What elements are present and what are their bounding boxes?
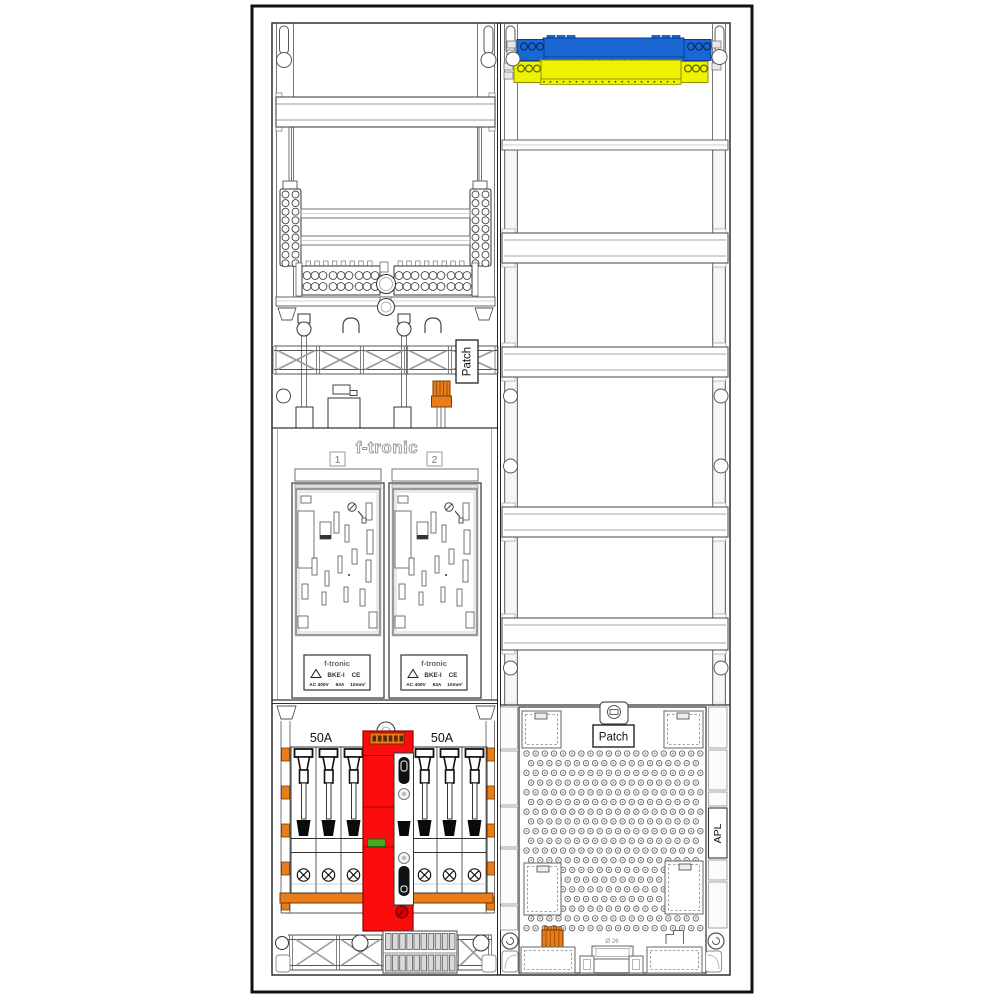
meter-slot <box>435 556 439 573</box>
comb-hole <box>292 251 299 258</box>
terminal-pin <box>378 736 382 742</box>
terminal-cell <box>421 955 427 971</box>
perforation-hole-center <box>558 917 560 919</box>
comb-hole <box>345 272 353 280</box>
patch-label-right: Patch <box>599 732 628 744</box>
perforation-hole-center <box>677 917 679 919</box>
perforation-hole-center <box>663 791 665 793</box>
din-clip-orange <box>282 862 290 875</box>
perforation-hole-center <box>585 917 587 919</box>
rail-hole <box>712 50 727 65</box>
perforation-hole-center <box>608 869 610 871</box>
busbar-dot <box>628 81 630 83</box>
perforation-hole-center <box>649 879 651 881</box>
comb-hole <box>282 251 289 258</box>
meter-slot <box>334 512 339 533</box>
perforation-hole-center <box>544 850 546 852</box>
clamp-block <box>296 407 313 428</box>
perforation-hole-center <box>562 753 564 755</box>
meter-slot <box>449 549 454 564</box>
perforation-hole-center <box>699 830 701 832</box>
comb-hole <box>411 272 419 280</box>
terminal-cell <box>421 934 427 950</box>
perforation-hole-center <box>599 830 601 832</box>
perforation-hole-center <box>640 840 642 842</box>
perforation-hole-center <box>690 772 692 774</box>
comb-tooth <box>460 261 465 266</box>
perforation-hole-center <box>558 801 560 803</box>
comb-hole <box>363 283 371 291</box>
perforation-hole-center <box>672 811 674 813</box>
thin-rail <box>502 140 728 150</box>
busbar-dot <box>550 81 552 83</box>
perforation-hole-center <box>649 917 651 919</box>
perforation-hole-center <box>672 791 674 793</box>
terminal-cell <box>428 934 434 950</box>
perforation-hole-center <box>677 840 679 842</box>
perforation-hole-center <box>690 753 692 755</box>
perforation-hole-center <box>590 772 592 774</box>
comb-hole <box>371 272 379 280</box>
perforation-hole-center <box>608 908 610 910</box>
device-handle <box>398 821 411 836</box>
meter-slot <box>322 592 326 605</box>
perforation-hole-center <box>644 927 646 929</box>
perforation-hole-center <box>658 859 660 861</box>
perforation-hole-center <box>567 898 569 900</box>
comb-hole <box>482 251 489 258</box>
comb-hole <box>355 272 363 280</box>
perforation-hole-center <box>580 869 582 871</box>
perforation-hole-center <box>562 850 564 852</box>
perforation-hole-center <box>622 859 624 861</box>
perforation-hole-center <box>612 801 614 803</box>
perforation-hole-center <box>580 772 582 774</box>
perforation-hole-center <box>603 820 605 822</box>
perforation-hole-center <box>677 782 679 784</box>
meter-slot <box>312 558 317 575</box>
din-clip-orange <box>282 824 290 837</box>
busbar-dot <box>576 81 578 83</box>
rail-block <box>501 707 518 749</box>
perforation-hole-center <box>617 772 619 774</box>
perforation-hole-center <box>644 753 646 755</box>
perforation-hole-center <box>544 772 546 774</box>
perforation-hole-center <box>539 820 541 822</box>
comb-tooth <box>433 261 438 266</box>
breaker-rating-right: 50A <box>431 731 454 745</box>
terminal-cell <box>414 955 420 971</box>
terminal-cell <box>435 934 441 950</box>
patch-label-left: Patch <box>462 347 474 376</box>
perforation-hole-center <box>635 927 637 929</box>
perforation-hole-center <box>644 908 646 910</box>
rail-hole <box>481 53 496 68</box>
comb-hole <box>282 208 289 215</box>
perforation-hole-center <box>617 927 619 929</box>
perforation-hole-center <box>576 820 578 822</box>
perforation-hole-center <box>635 791 637 793</box>
perforation-hole-center <box>663 753 665 755</box>
corner-foot <box>482 955 496 972</box>
perforation-hole-center <box>663 850 665 852</box>
perforation-hole-center <box>612 820 614 822</box>
perforation-hole-center <box>654 869 656 871</box>
perforation-hole-center <box>699 850 701 852</box>
din-clip-orange <box>487 786 495 799</box>
perforation-hole-center <box>558 859 560 861</box>
perforation-hole-center <box>681 830 683 832</box>
comb-hole <box>403 272 411 280</box>
busbar-dot <box>602 81 604 83</box>
perforation-hole-center <box>658 762 660 764</box>
perforation-hole-center <box>622 762 624 764</box>
wiring-comb-bottom <box>296 261 478 296</box>
perforation-hole-center <box>667 820 669 822</box>
perforation-hole-center <box>567 840 569 842</box>
busbar-dot <box>608 81 610 83</box>
din-clip-orange <box>282 748 290 761</box>
perforation-hole-center <box>548 917 550 919</box>
comb-hole <box>403 283 411 291</box>
perforation-hole-center <box>571 908 573 910</box>
meter-slot <box>345 525 349 542</box>
perforation-hole-center <box>635 811 637 813</box>
perforation-hole-center <box>576 762 578 764</box>
meter-slot <box>366 560 371 582</box>
perforation-hole-center <box>580 927 582 929</box>
perforation-hole-center <box>617 850 619 852</box>
perforation-hole-center <box>603 762 605 764</box>
perforation-hole-center <box>672 927 674 929</box>
perforation-hole-center <box>590 888 592 890</box>
perforation-hole-center <box>594 820 596 822</box>
plate-current: 63A <box>433 682 442 688</box>
perforation-hole-center <box>699 753 701 755</box>
perforation-hole-center <box>580 830 582 832</box>
perforation-hole-center <box>539 859 541 861</box>
perforation-hole-center <box>681 753 683 755</box>
perforation-hole-center <box>590 850 592 852</box>
perforation-hole-center <box>603 859 605 861</box>
busbar-dot <box>667 81 669 83</box>
din-rail <box>502 507 728 537</box>
perforation-hole-center <box>590 830 592 832</box>
terminal-pin <box>383 736 387 742</box>
rail-block <box>709 750 728 790</box>
perforation-hole-center <box>608 888 610 890</box>
breaker-stem <box>352 783 357 819</box>
comb-hole <box>319 272 327 280</box>
comb-hole <box>395 283 403 291</box>
meter-slot <box>466 612 474 628</box>
busbar-dot <box>569 81 571 83</box>
perforation-hole-center <box>612 782 614 784</box>
perforation-hole-center <box>617 869 619 871</box>
perforation-hole-center <box>672 753 674 755</box>
perforation-hole-center <box>640 820 642 822</box>
comb-hole <box>282 234 289 241</box>
meter-slot <box>352 549 357 564</box>
perforation-hole-center <box>530 801 532 803</box>
comb-hole <box>345 283 353 291</box>
perforation-hole-center <box>585 801 587 803</box>
meter-slot <box>302 584 308 599</box>
corner-foot <box>276 955 290 972</box>
perforation-hole-center <box>622 820 624 822</box>
perforation-hole-center <box>681 811 683 813</box>
breaker-stem <box>423 783 428 819</box>
perforation-hole-center <box>690 791 692 793</box>
perforation-hole-center <box>617 888 619 890</box>
comb-hole <box>292 191 299 198</box>
perforation-hole-center <box>603 898 605 900</box>
perforation-hole-center <box>562 830 564 832</box>
comb-tooth <box>416 261 421 266</box>
perforation-hole-center <box>548 782 550 784</box>
perforation-hole-center <box>626 888 628 890</box>
din-clip-orange <box>282 786 290 799</box>
orange-terminal-strip <box>370 733 404 744</box>
terminal-cell <box>400 955 406 971</box>
comb-hole <box>455 272 463 280</box>
terminal-cell <box>442 934 448 950</box>
perforation-hole-center <box>580 888 582 890</box>
perforation-hole-center <box>672 850 674 852</box>
perforation-hole-center <box>631 782 633 784</box>
perforation-hole-center <box>576 917 578 919</box>
terminal-cell <box>435 955 441 971</box>
perforation-hole-center <box>599 927 601 929</box>
perforation-hole-center <box>631 820 633 822</box>
breaker-stem <box>448 783 453 819</box>
perforation-hole-center <box>553 850 555 852</box>
perforation-hole-center <box>535 811 537 813</box>
comb-hole <box>292 208 299 215</box>
breaker-hook-neck <box>323 757 335 770</box>
perforation-hole-center <box>635 772 637 774</box>
perforation-hole-center <box>585 762 587 764</box>
perforation-hole-center <box>640 859 642 861</box>
comb-tooth <box>442 261 447 266</box>
comb-tooth <box>350 261 355 266</box>
terminal-pin <box>373 736 377 742</box>
perforation-hole-center <box>599 753 601 755</box>
perforation-hole-center <box>635 830 637 832</box>
perforation-hole-center <box>690 830 692 832</box>
comb-hole <box>282 200 289 207</box>
meter-slot <box>431 512 436 533</box>
comb-hole <box>421 272 429 280</box>
breaker-hook-foot <box>300 770 309 783</box>
comb-hole <box>292 217 299 224</box>
rail-block <box>501 906 518 930</box>
rail-block <box>709 792 728 806</box>
breaker-hook <box>441 749 459 757</box>
comb-hole <box>292 243 299 250</box>
perforation-hole-center <box>654 772 656 774</box>
comb-hole <box>455 283 463 291</box>
meter-slot <box>419 592 423 605</box>
perforation-hole-center <box>526 791 528 793</box>
breaker-hook <box>416 749 434 757</box>
perforation-hole-center <box>663 811 665 813</box>
perforation-hole-center <box>544 830 546 832</box>
perforation-hole-center <box>663 830 665 832</box>
side-hole <box>277 389 291 403</box>
perforation-hole-center <box>603 917 605 919</box>
perforation-hole-center <box>681 791 683 793</box>
breaker-hook <box>345 749 363 757</box>
terminal-pin <box>389 736 393 742</box>
perforation-hole-center <box>640 801 642 803</box>
lattice-end-hole <box>352 935 368 951</box>
comb-hole <box>421 283 429 291</box>
perforation-hole-center <box>626 753 628 755</box>
perforation-hole-center <box>695 820 697 822</box>
perforation-hole-center <box>699 791 701 793</box>
busbar-dot <box>543 81 545 83</box>
perforation-hole-center <box>535 791 537 793</box>
meter-dot <box>445 574 447 576</box>
perforation-hole-center <box>530 917 532 919</box>
comb-tooth <box>332 261 337 266</box>
perforation-hole-center <box>539 782 541 784</box>
perforation-hole-center <box>695 762 697 764</box>
perforation-hole-center <box>612 840 614 842</box>
comb-tooth <box>451 261 456 266</box>
perforation-hole-center <box>658 820 660 822</box>
busbar-dot <box>647 81 649 83</box>
perforation-hole-center <box>599 791 601 793</box>
comb-hole <box>472 217 479 224</box>
perforation-hole-center <box>654 830 656 832</box>
perforation-hole-center <box>654 811 656 813</box>
perforation-hole-center <box>571 850 573 852</box>
meter-slot <box>366 503 372 520</box>
comb-hole <box>437 283 445 291</box>
gland-diameter-label: Ø 26 <box>605 938 619 945</box>
comb-hole <box>482 234 489 241</box>
perforation-hole-center <box>594 879 596 881</box>
perforation-hole-center <box>654 791 656 793</box>
terminal-cell <box>386 934 392 950</box>
perforation-hole-center <box>599 850 601 852</box>
plate-wire-size: 10mm² <box>350 682 366 688</box>
perforation-hole-center <box>590 791 592 793</box>
comb-hole <box>472 191 479 198</box>
perforation-hole-center <box>626 811 628 813</box>
comb-hole <box>429 283 437 291</box>
cutout-rect-bottom-right <box>647 947 702 973</box>
perforation-hole-center <box>631 898 633 900</box>
perforation-hole-center <box>686 782 688 784</box>
terminal-cell <box>414 934 420 950</box>
perforation-hole-center <box>631 859 633 861</box>
breaker-stem <box>327 783 332 819</box>
surge-device-red <box>363 731 414 931</box>
rail-slot <box>484 26 493 54</box>
perforation-hole-center <box>654 850 656 852</box>
terminal-cell <box>386 955 392 971</box>
perforation-hole-center <box>571 791 573 793</box>
busbar-dot <box>589 81 591 83</box>
breaker-hook-foot <box>446 770 455 783</box>
busbar-dot <box>595 81 597 83</box>
comb-tooth <box>398 261 403 266</box>
perforation-hole-center <box>699 927 701 929</box>
perforation-hole-center <box>553 791 555 793</box>
clamp-block <box>328 398 360 428</box>
terminal-cell <box>442 955 448 971</box>
plate-ce-mark: CE <box>449 672 458 679</box>
perforation-hole-center <box>567 820 569 822</box>
comb-hole <box>463 272 471 280</box>
perforation-hole-center <box>571 869 573 871</box>
perforation-hole-center <box>690 927 692 929</box>
perforation-hole-center <box>667 762 669 764</box>
perforation-hole-center <box>686 840 688 842</box>
busbar-dot <box>615 81 617 83</box>
perforation-hole-center <box>649 898 651 900</box>
breaker-hook-neck <box>419 757 431 770</box>
meter-slot <box>298 616 308 628</box>
perforation-hole-center <box>658 917 660 919</box>
comb-hole <box>411 283 419 291</box>
breaker-hook-neck <box>444 757 456 770</box>
comb-hole <box>292 225 299 232</box>
perforation-hole-center <box>631 879 633 881</box>
perforation-hole-center <box>585 879 587 881</box>
perforation-hole-center <box>654 908 656 910</box>
perforation-hole-center <box>558 820 560 822</box>
meter-slot <box>422 571 426 586</box>
perforation-hole-center <box>631 840 633 842</box>
perforation-hole-center <box>608 811 610 813</box>
status-led-green <box>368 839 386 847</box>
terminal-cell <box>400 934 406 950</box>
perforation-hole-center <box>612 879 614 881</box>
breaker-hook-foot <box>325 770 334 783</box>
perforation-hole-center <box>576 879 578 881</box>
perforation-hole-center <box>599 908 601 910</box>
perforation-hole-center <box>699 811 701 813</box>
perforation-hole-center <box>553 811 555 813</box>
perforation-hole-center <box>526 830 528 832</box>
comb-hole <box>482 243 489 250</box>
busbar-dot <box>556 81 558 83</box>
perforation-hole-center <box>599 811 601 813</box>
perforation-hole-center <box>663 908 665 910</box>
perforation-hole-center <box>590 753 592 755</box>
screwdriver-icon-tip <box>362 518 366 523</box>
perforation-hole-center <box>658 840 660 842</box>
meter-slot <box>464 530 470 554</box>
perforation-hole-center <box>571 811 573 813</box>
perforation-hole-center <box>686 820 688 822</box>
perforation-hole-center <box>576 782 578 784</box>
perforation-hole-center <box>594 859 596 861</box>
perforation-hole-center <box>548 820 550 822</box>
perforation-hole-center <box>663 888 665 890</box>
meter-slot <box>367 530 373 554</box>
perforation-hole-center <box>599 869 601 871</box>
perforation-hole-center <box>535 850 537 852</box>
perforation-hole-center <box>626 908 628 910</box>
perforation-hole-center <box>585 898 587 900</box>
perforation-hole-center <box>603 801 605 803</box>
meter-slot-contact <box>320 535 331 539</box>
